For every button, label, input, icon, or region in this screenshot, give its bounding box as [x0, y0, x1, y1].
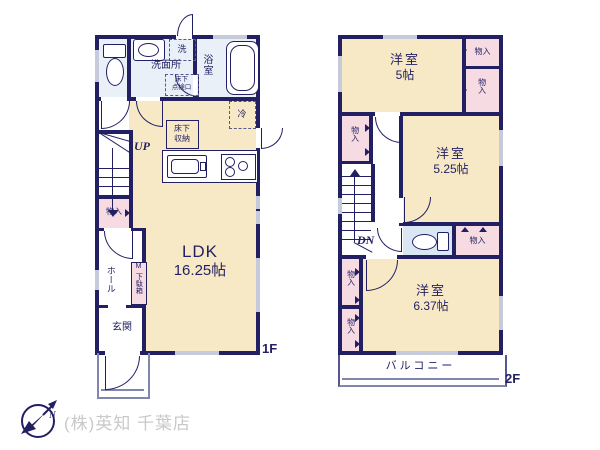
underfloor-storage-label: 床下収納	[166, 124, 198, 145]
faucet-icon	[200, 162, 206, 171]
closet-door-mark	[365, 124, 370, 132]
stair-arrow-up	[350, 169, 360, 176]
stairs-down-label: DN	[357, 233, 374, 247]
door-gap	[256, 128, 260, 148]
closet-2f-f-label: 物入	[346, 318, 356, 334]
closet-door-mark	[125, 209, 130, 217]
bathtub-inner	[230, 45, 255, 91]
compass-icon: N	[12, 392, 68, 448]
bedroom-525-label: 洋室 5.25帖	[407, 146, 495, 176]
closet-door-mark	[355, 296, 360, 304]
closet-door-mark	[462, 86, 467, 94]
balcony-rail-line	[342, 378, 499, 380]
burner-icon	[238, 161, 248, 171]
wall	[399, 222, 503, 226]
window	[383, 35, 417, 39]
closet-door-mark	[365, 148, 370, 156]
wall	[371, 164, 375, 222]
closet-door-mark	[355, 314, 360, 322]
floor-label-2f: 2F	[505, 371, 520, 386]
closet-door-mark	[355, 268, 360, 276]
hall-label: ホール	[105, 266, 116, 293]
shoe-box-m-label: M	[131, 263, 146, 271]
washroom-label: 洗面所	[142, 60, 190, 72]
wall	[99, 305, 108, 308]
fridge-label: 冷	[229, 109, 255, 120]
window	[499, 296, 503, 330]
wall	[338, 35, 503, 39]
wall	[127, 35, 131, 101]
underfloor-hatch-label: 床下点検口	[165, 76, 198, 93]
wall	[126, 305, 142, 308]
stairs-up-label: UP	[134, 139, 150, 153]
window	[256, 211, 260, 224]
door-gap	[375, 112, 400, 116]
closet-2f-d-label: 物入	[456, 236, 499, 246]
window	[256, 196, 260, 209]
closet-2f-c-label: 物入	[350, 126, 360, 142]
shoe-box-label: 下駄箱	[134, 273, 142, 294]
wall	[338, 112, 503, 116]
company-name: (株)英知 千葉店	[64, 414, 191, 434]
closet-door-mark	[461, 227, 469, 232]
window	[499, 130, 503, 166]
stairs-2f	[342, 168, 371, 242]
window	[338, 56, 342, 92]
door-gap	[399, 198, 403, 223]
window	[213, 35, 247, 39]
stair-direction-line	[112, 148, 113, 210]
closet-door-mark	[479, 227, 487, 232]
ldk-label: LDK 16.25帖	[148, 242, 252, 280]
north-label: N	[48, 410, 57, 421]
wall	[342, 161, 373, 164]
stair-direction-line	[354, 176, 355, 242]
floor-plan-1f: 洗 床下点検口 床下収納 冷 M 下駄箱 洗面所 浴室 UP 物入 ホール 玄関…	[0, 0, 300, 450]
closet-2f-a-label: 物入	[466, 47, 499, 57]
closet-2f-b-label: 物入	[477, 78, 487, 94]
window	[175, 351, 219, 355]
vanity-basin-icon	[138, 43, 159, 57]
kitchen-sink-basin	[171, 159, 199, 174]
floor-label-1f: 1F	[262, 341, 277, 356]
window	[95, 270, 99, 290]
bath-label: 浴室	[200, 54, 212, 76]
wall	[338, 305, 363, 309]
door-arc	[261, 128, 283, 149]
toilet-tank-icon	[437, 232, 449, 251]
window	[256, 258, 260, 312]
entrance-label: 玄関	[102, 322, 142, 334]
closet-door-mark	[355, 340, 360, 348]
closet-2f-e-label: 物入	[346, 270, 356, 286]
toilet-bowl-icon	[106, 58, 124, 86]
door-arc	[177, 14, 193, 36]
stairs-1f	[99, 160, 129, 198]
washer-label: 洗	[169, 44, 195, 55]
burner-icon	[225, 157, 235, 167]
toilet-tank-icon	[103, 44, 126, 58]
burner-icon	[225, 167, 235, 177]
window	[95, 50, 99, 82]
door-gap	[366, 255, 397, 259]
toilet-bowl-icon	[412, 234, 437, 250]
bedroom-5-label: 洋室 5帖	[363, 52, 447, 82]
balcony-label: バルコニー	[338, 360, 503, 373]
wall	[462, 66, 503, 69]
bedroom-637-label: 洋室 6.37帖	[386, 283, 476, 313]
